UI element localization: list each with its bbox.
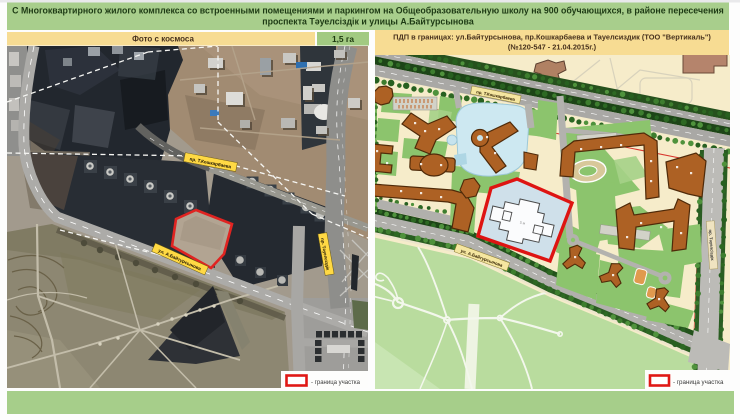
svg-text:- граница участка: - граница участка <box>311 380 361 386</box>
svg-text:(№120-547 - 21.04.2015г.): (№120-547 - 21.04.2015г.) <box>508 43 597 52</box>
svg-text:- граница участка: - граница участка <box>673 379 724 386</box>
svg-text:1,5 га: 1,5 га <box>332 34 354 44</box>
svg-text:Фото с космоса: Фото с космоса <box>132 35 194 44</box>
svg-text:ПДП в границах: ул.Байтурсынов: ПДП в границах: ул.Байтурсынова, пр.Кошк… <box>393 33 711 42</box>
svg-text:С Многоквартирного жилого комп: С Многоквартирного жилого комплекса со в… <box>12 6 724 16</box>
svg-text:проспекта Тәуелсіздік и улицы: проспекта Тәуелсіздік и улицы А.Байтурсы… <box>262 17 474 27</box>
